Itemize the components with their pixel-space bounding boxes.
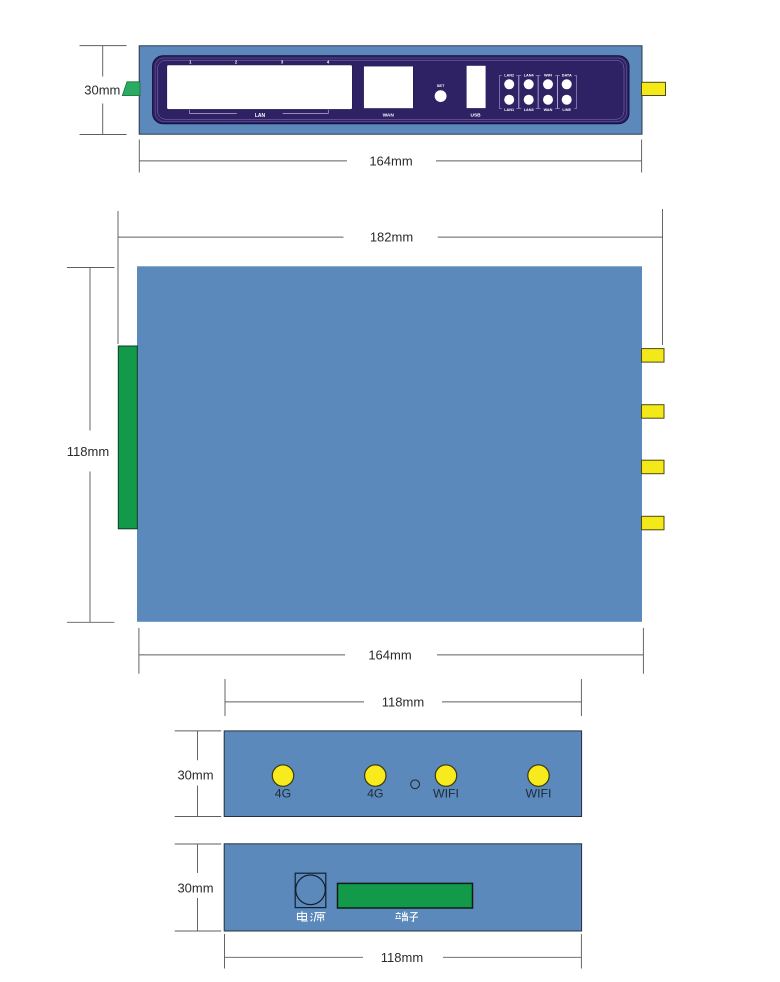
svg-text:LAN3: LAN3 xyxy=(524,108,534,112)
svg-text:WAN: WAN xyxy=(383,112,395,118)
svg-text:4G: 4G xyxy=(275,787,291,801)
svg-text:30mm: 30mm xyxy=(177,880,213,895)
svg-text:30mm: 30mm xyxy=(84,83,120,98)
svg-text:30mm: 30mm xyxy=(177,768,213,783)
svg-text:WAN: WAN xyxy=(544,108,553,112)
svg-text:SET: SET xyxy=(437,83,445,88)
svg-text:4G: 4G xyxy=(367,787,383,801)
svg-text:LAN1: LAN1 xyxy=(504,108,514,112)
svg-text:LAN4: LAN4 xyxy=(524,74,535,78)
svg-text:WIFI: WIFI xyxy=(544,74,552,78)
svg-text:WIFI: WIFI xyxy=(433,787,459,801)
svg-text:164mm: 164mm xyxy=(369,153,412,168)
svg-text:118mm: 118mm xyxy=(382,694,424,709)
svg-text:LAN: LAN xyxy=(255,113,266,119)
svg-text:DATA: DATA xyxy=(562,74,572,78)
svg-text:118mm: 118mm xyxy=(67,444,109,459)
svg-text:118mm: 118mm xyxy=(381,950,423,965)
svg-text:182mm: 182mm xyxy=(370,230,413,245)
svg-text:LINE: LINE xyxy=(562,108,571,112)
svg-text:WIFI: WIFI xyxy=(526,787,552,801)
svg-text:164mm: 164mm xyxy=(368,647,411,662)
svg-text:USB: USB xyxy=(471,112,482,118)
svg-text:LAN2: LAN2 xyxy=(504,74,514,78)
